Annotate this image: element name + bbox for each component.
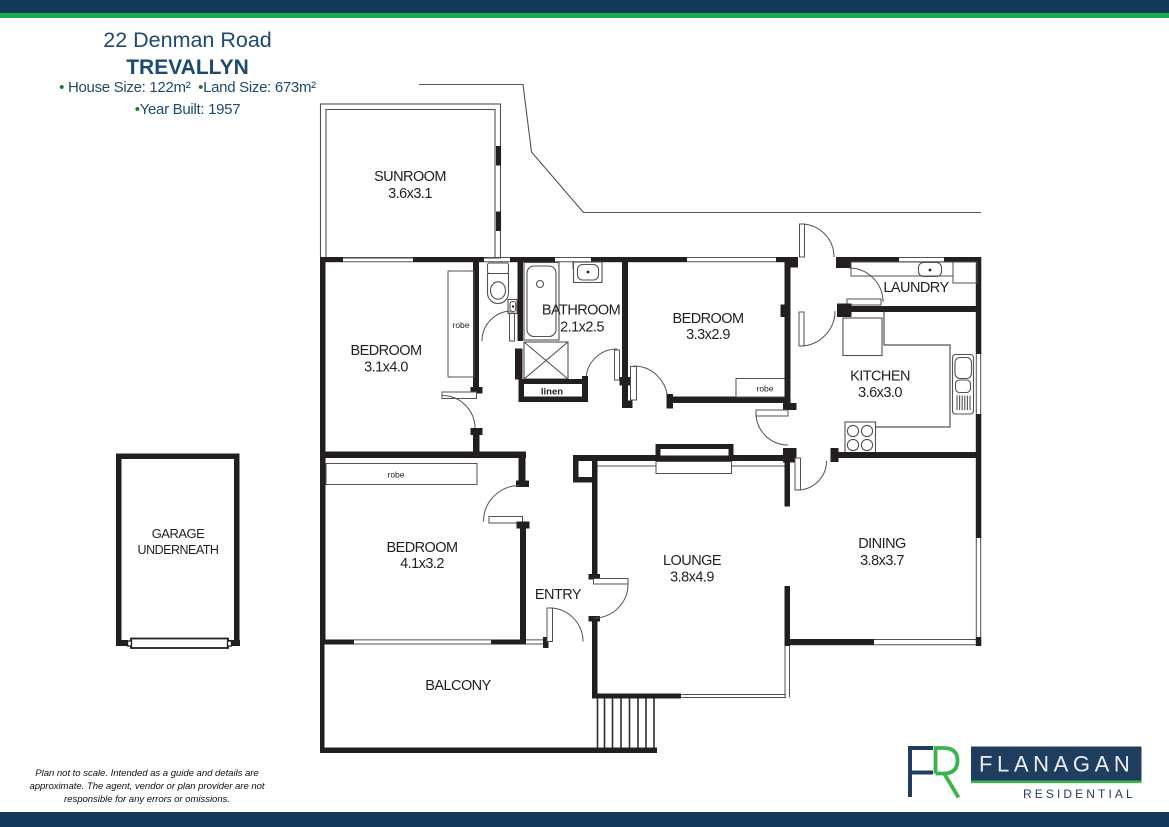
svg-text:3.1x4.0: 3.1x4.0 — [364, 360, 408, 376]
svg-text:4.1x3.2: 4.1x3.2 — [400, 556, 444, 572]
svg-text:3.6x3.1: 3.6x3.1 — [388, 186, 432, 202]
svg-text:robe: robe — [387, 470, 404, 480]
svg-text:BEDROOM: BEDROOM — [672, 311, 743, 327]
svg-text:robe: robe — [452, 320, 469, 330]
svg-text:SUNROOM: SUNROOM — [374, 169, 446, 185]
svg-text:BEDROOM: BEDROOM — [350, 343, 421, 359]
svg-text:GARAGE: GARAGE — [152, 526, 205, 541]
svg-text:KITCHEN: KITCHEN — [850, 369, 910, 385]
svg-text:robe: robe — [756, 384, 773, 394]
svg-text:linen: linen — [541, 387, 563, 398]
svg-text:BATHROOM: BATHROOM — [542, 303, 620, 319]
svg-text:BALCONY: BALCONY — [425, 678, 491, 694]
svg-text:FLANAGAN: FLANAGAN — [979, 752, 1134, 777]
svg-text:3.8x4.9: 3.8x4.9 — [670, 570, 714, 586]
svg-text:LOUNGE: LOUNGE — [663, 553, 722, 569]
svg-text:LAUNDRY: LAUNDRY — [883, 280, 949, 296]
svg-text:3.8x3.7: 3.8x3.7 — [860, 553, 904, 569]
svg-text:3.6x3.0: 3.6x3.0 — [858, 385, 902, 401]
svg-text:2.1x2.5: 2.1x2.5 — [560, 320, 604, 336]
svg-text:ENTRY: ENTRY — [535, 587, 582, 603]
svg-text:3.3x2.9: 3.3x2.9 — [686, 327, 730, 343]
svg-text:UNDERNEATH: UNDERNEATH — [138, 543, 219, 557]
svg-text:DINING: DINING — [858, 536, 906, 552]
svg-text:RESIDENTIAL: RESIDENTIAL — [1023, 787, 1136, 801]
svg-text:BEDROOM: BEDROOM — [386, 540, 457, 556]
